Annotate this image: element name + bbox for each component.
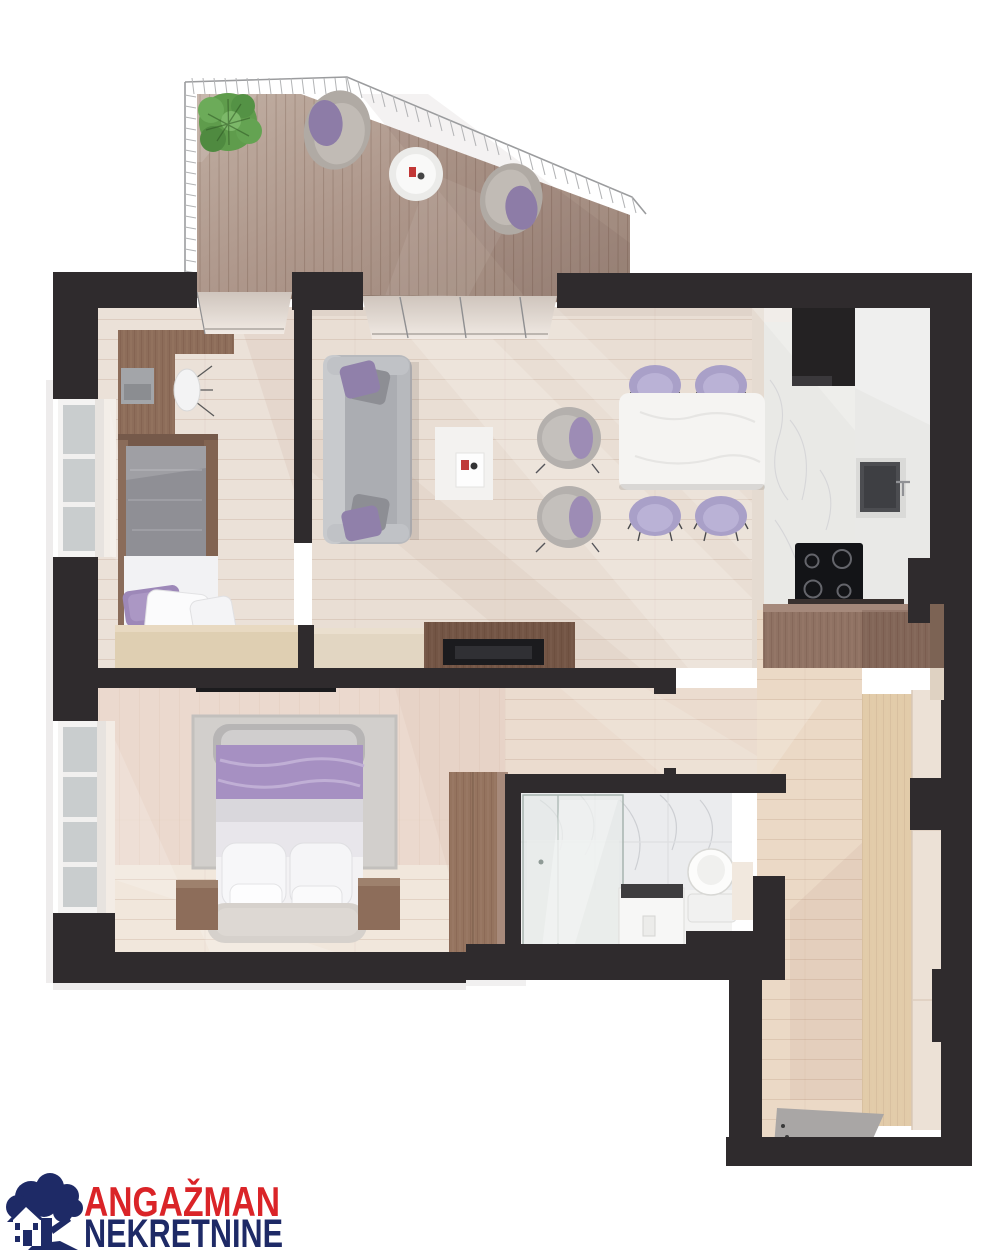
svg-text:NEKRETNINE: NEKRETNINE — [84, 1212, 283, 1250]
